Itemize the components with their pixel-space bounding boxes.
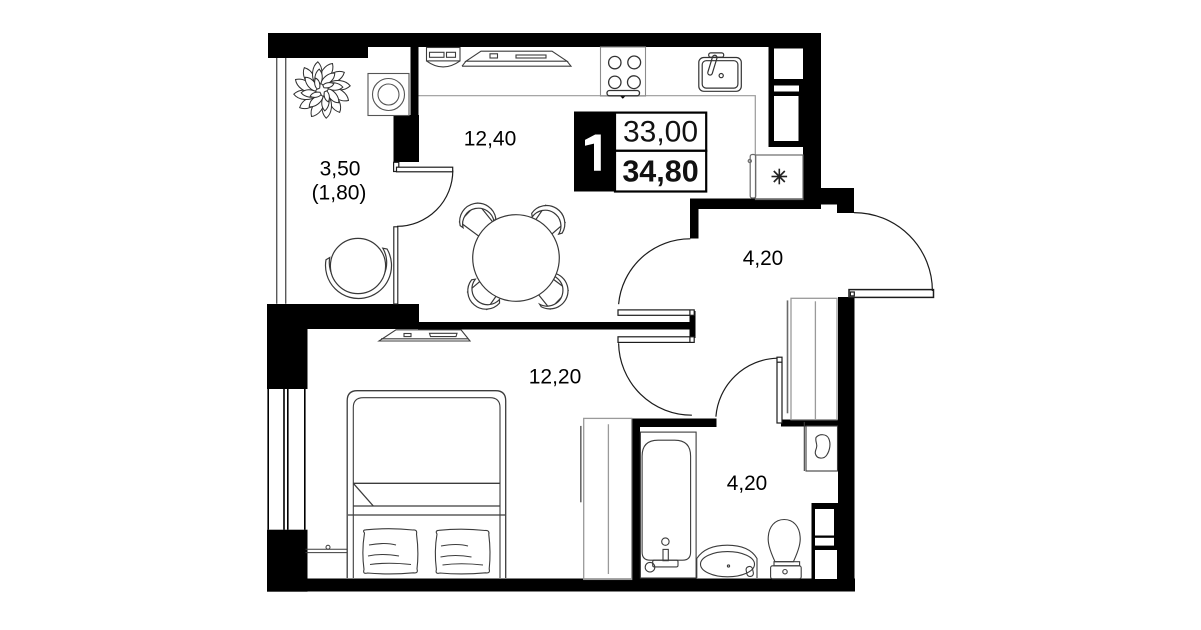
svg-text:3,50: 3,50 — [320, 157, 361, 180]
svg-text:34,80: 34,80 — [622, 155, 698, 189]
svg-text:(1,80): (1,80) — [312, 182, 367, 205]
svg-text:12,40: 12,40 — [464, 127, 517, 150]
svg-text:12,20: 12,20 — [529, 366, 582, 389]
svg-text:4,20: 4,20 — [727, 472, 767, 495]
svg-text:33,00: 33,00 — [623, 116, 698, 149]
svg-text:4,20: 4,20 — [743, 247, 783, 270]
